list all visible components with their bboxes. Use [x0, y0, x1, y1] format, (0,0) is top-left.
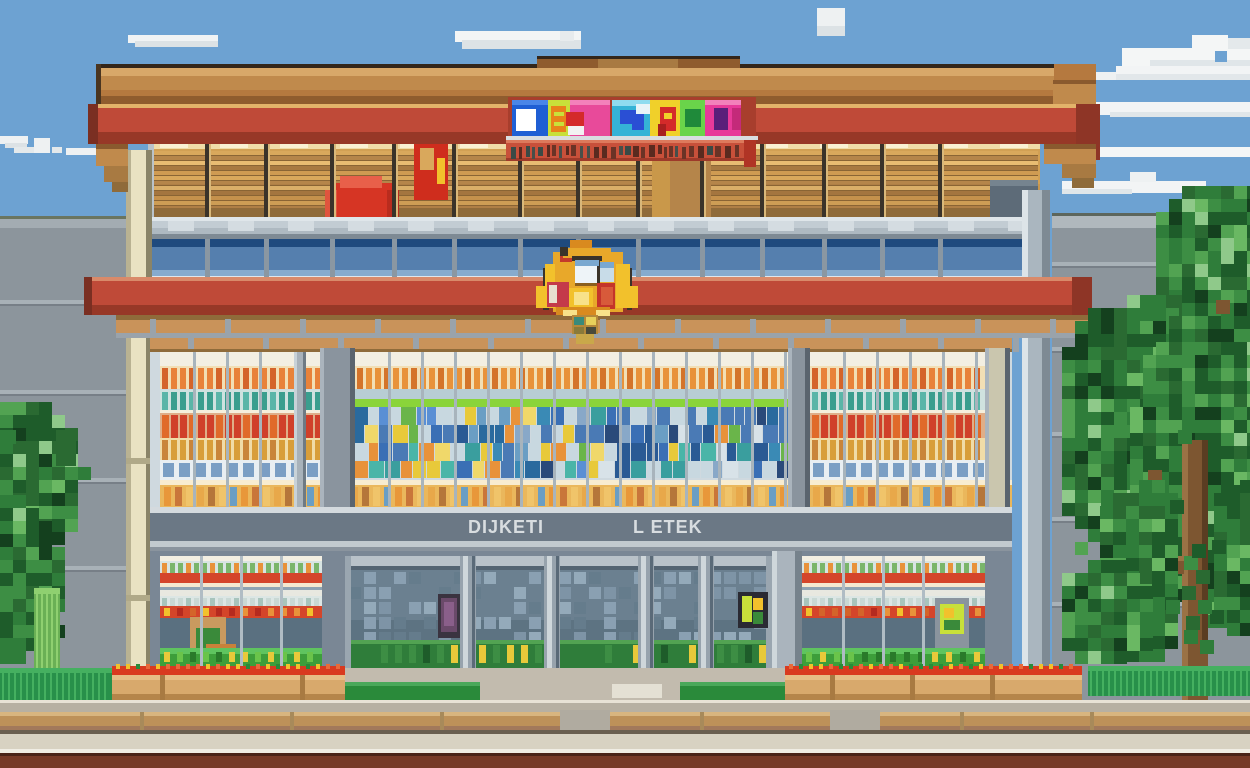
svg-text:L ETEK: L ETEK — [633, 517, 703, 537]
svg-text:DIJKETI: DIJKETI — [468, 517, 544, 537]
